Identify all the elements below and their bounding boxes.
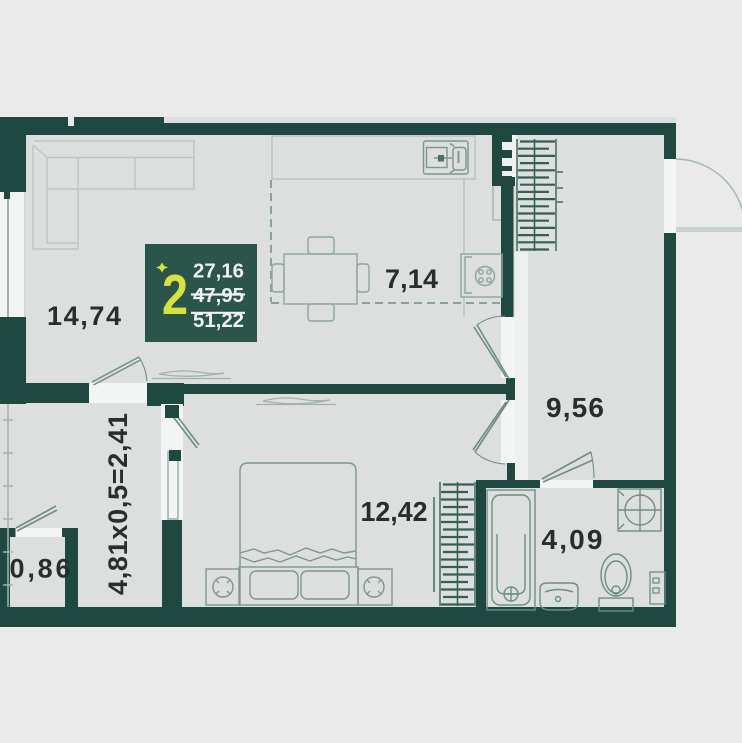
svg-text:12,42: 12,42 — [361, 496, 428, 527]
svg-text:27,16: 27,16 — [193, 260, 244, 283]
svg-text:7,14: 7,14 — [385, 264, 438, 294]
svg-text:4,81x0,5=2,41: 4,81x0,5=2,41 — [103, 413, 133, 595]
svg-text:14,74: 14,74 — [47, 301, 121, 331]
svg-text:4,09: 4,09 — [542, 524, 603, 555]
svg-text:9,56: 9,56 — [546, 392, 604, 423]
svg-text:2: 2 — [162, 263, 188, 327]
svg-text:0,86: 0,86 — [10, 554, 71, 584]
